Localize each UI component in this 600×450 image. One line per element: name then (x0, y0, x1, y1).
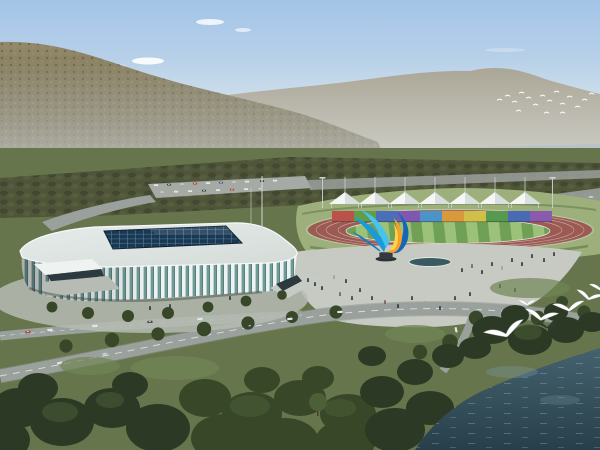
tree (105, 333, 119, 347)
grandstand-panel (508, 211, 530, 222)
car (273, 180, 277, 182)
pedestrian (424, 301, 426, 305)
car (167, 184, 171, 186)
pedestrian (481, 270, 483, 274)
grandstand-panel (420, 211, 442, 222)
car (180, 183, 184, 185)
pedestrian (384, 300, 386, 304)
pedestrian (553, 252, 555, 256)
car (589, 196, 594, 198)
car (193, 183, 197, 185)
car (160, 191, 164, 193)
pedestrian (454, 296, 456, 300)
car (244, 188, 248, 190)
pedestrian (333, 275, 335, 279)
car (206, 182, 210, 184)
water-sheen (486, 366, 538, 378)
car (202, 190, 206, 192)
tree (286, 311, 298, 323)
car (154, 184, 158, 186)
car (92, 325, 97, 327)
pedestrian (461, 268, 463, 272)
haze-layer (0, 60, 600, 156)
plaza-pool (409, 258, 451, 267)
pedestrian (345, 279, 347, 283)
tree (47, 302, 58, 313)
pedestrian (469, 292, 471, 296)
tree (151, 327, 164, 340)
car (337, 311, 342, 314)
car (219, 182, 223, 184)
grandstand-panel (486, 211, 508, 222)
pedestrian (471, 264, 473, 268)
water-sheen (540, 395, 580, 405)
panel-shadow (332, 221, 552, 222)
pedestrian (371, 296, 373, 300)
pedestrian (339, 292, 341, 296)
grandstand-panel (442, 211, 464, 222)
tree (82, 307, 94, 319)
pedestrian (359, 288, 361, 292)
pedestrian (321, 286, 323, 290)
pedestrian (439, 306, 441, 310)
pedestrian (521, 262, 523, 266)
pedestrian (229, 296, 231, 300)
car (216, 189, 220, 191)
pedestrian (501, 266, 503, 270)
sports-complex-rendering: Aerial rendering of a riverside sports c… (0, 0, 600, 450)
pedestrian (169, 304, 171, 308)
car (188, 190, 192, 192)
pedestrian (531, 254, 533, 258)
pedestrian (511, 258, 513, 262)
pedestrian (307, 278, 309, 282)
tree (241, 316, 254, 329)
car (147, 321, 152, 323)
tree (162, 307, 174, 319)
car (174, 191, 178, 193)
pedestrian (314, 282, 316, 286)
pedestrian (149, 306, 151, 310)
grandstand-panel (464, 211, 486, 222)
car (232, 181, 236, 183)
tree (241, 296, 252, 307)
grandstand-panel (530, 211, 552, 222)
sculpture-base (379, 252, 392, 259)
car (230, 189, 234, 191)
tree (59, 339, 72, 352)
tree (413, 345, 427, 359)
pedestrian (543, 258, 545, 262)
tree (122, 310, 134, 322)
tree (277, 290, 287, 300)
grandstand-panel (332, 211, 354, 222)
car (245, 181, 249, 183)
car (197, 318, 202, 320)
tree (203, 302, 214, 313)
rendering-canvas: Aerial rendering of a riverside sports c… (0, 0, 600, 450)
car (258, 188, 262, 190)
pedestrian (397, 304, 399, 308)
pedestrian (411, 296, 413, 300)
pedestrian (351, 296, 353, 300)
pedestrian (491, 262, 493, 266)
car (25, 331, 30, 334)
car (47, 329, 52, 332)
tree (197, 322, 211, 336)
